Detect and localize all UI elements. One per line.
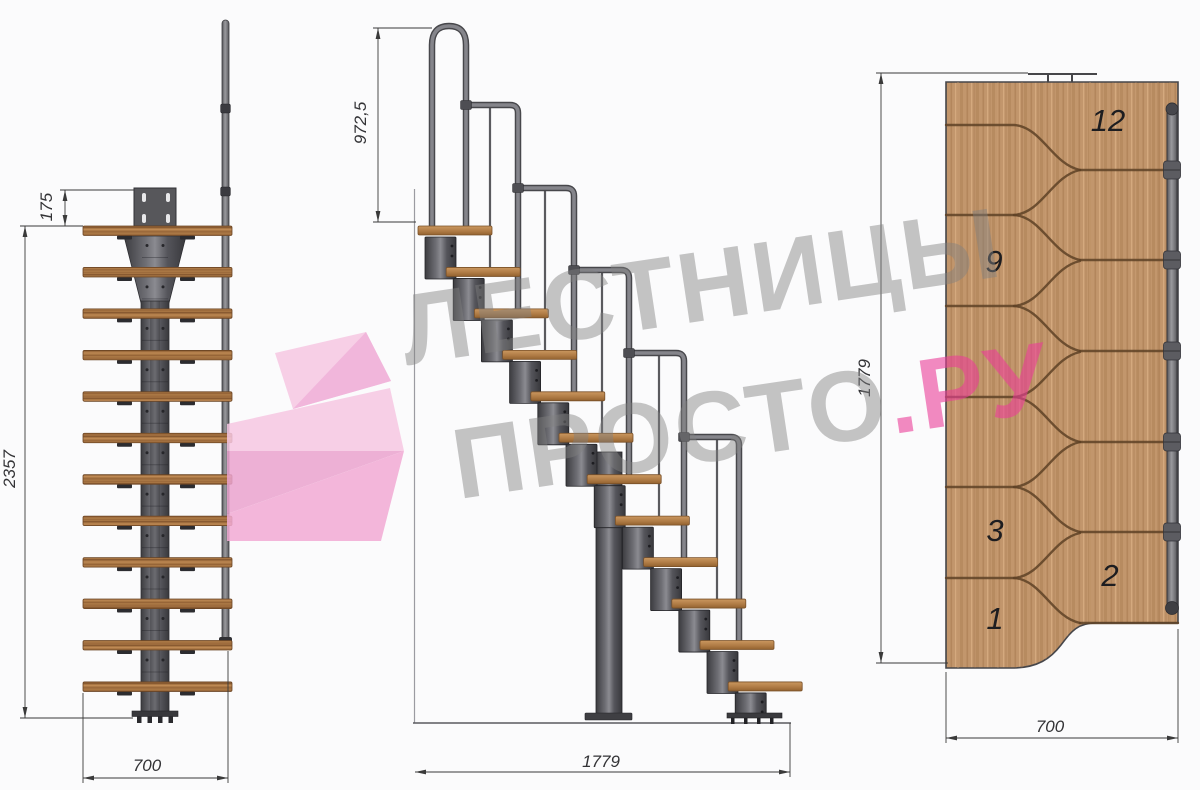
dim-label-side-handrail-height: 972,5 [351,101,370,144]
side-support-base [585,713,632,720]
step-number-3: 3 [986,513,1003,548]
dim-label-plan-width: 700 [1036,717,1065,736]
step-number-9: 9 [985,244,1002,279]
technical-drawing: 175 2357 700 [0,0,1200,790]
front-column-stripe [150,301,160,713]
front-top-plate [134,188,176,226]
plan-handrail-bottom-cap [1166,602,1179,615]
dim-label-plan-length: 1779 [855,359,874,397]
dim-label-side-length: 1779 [582,752,620,771]
plan-handrail-top-cap [1166,103,1178,115]
side-handrail [432,26,739,642]
step-number-2: 2 [1100,558,1118,593]
side-view: 972,5 1779 [351,26,802,777]
front-view: 175 2357 700 [0,20,232,783]
plan-view: 12 9 3 2 1 1779 700 [855,73,1181,743]
step-number-12: 12 [1091,103,1125,138]
dim-label-front-top-offset: 175 [37,192,56,221]
front-baluster-pole [222,20,229,648]
plan-top-plate-edge [1028,74,1097,82]
dim-label-front-height: 2357 [0,450,19,489]
dim-label-front-width: 700 [133,756,162,775]
drawing-page: 175 2357 700 [0,0,1200,790]
front-base [132,711,178,723]
step-number-1: 1 [986,601,1003,636]
